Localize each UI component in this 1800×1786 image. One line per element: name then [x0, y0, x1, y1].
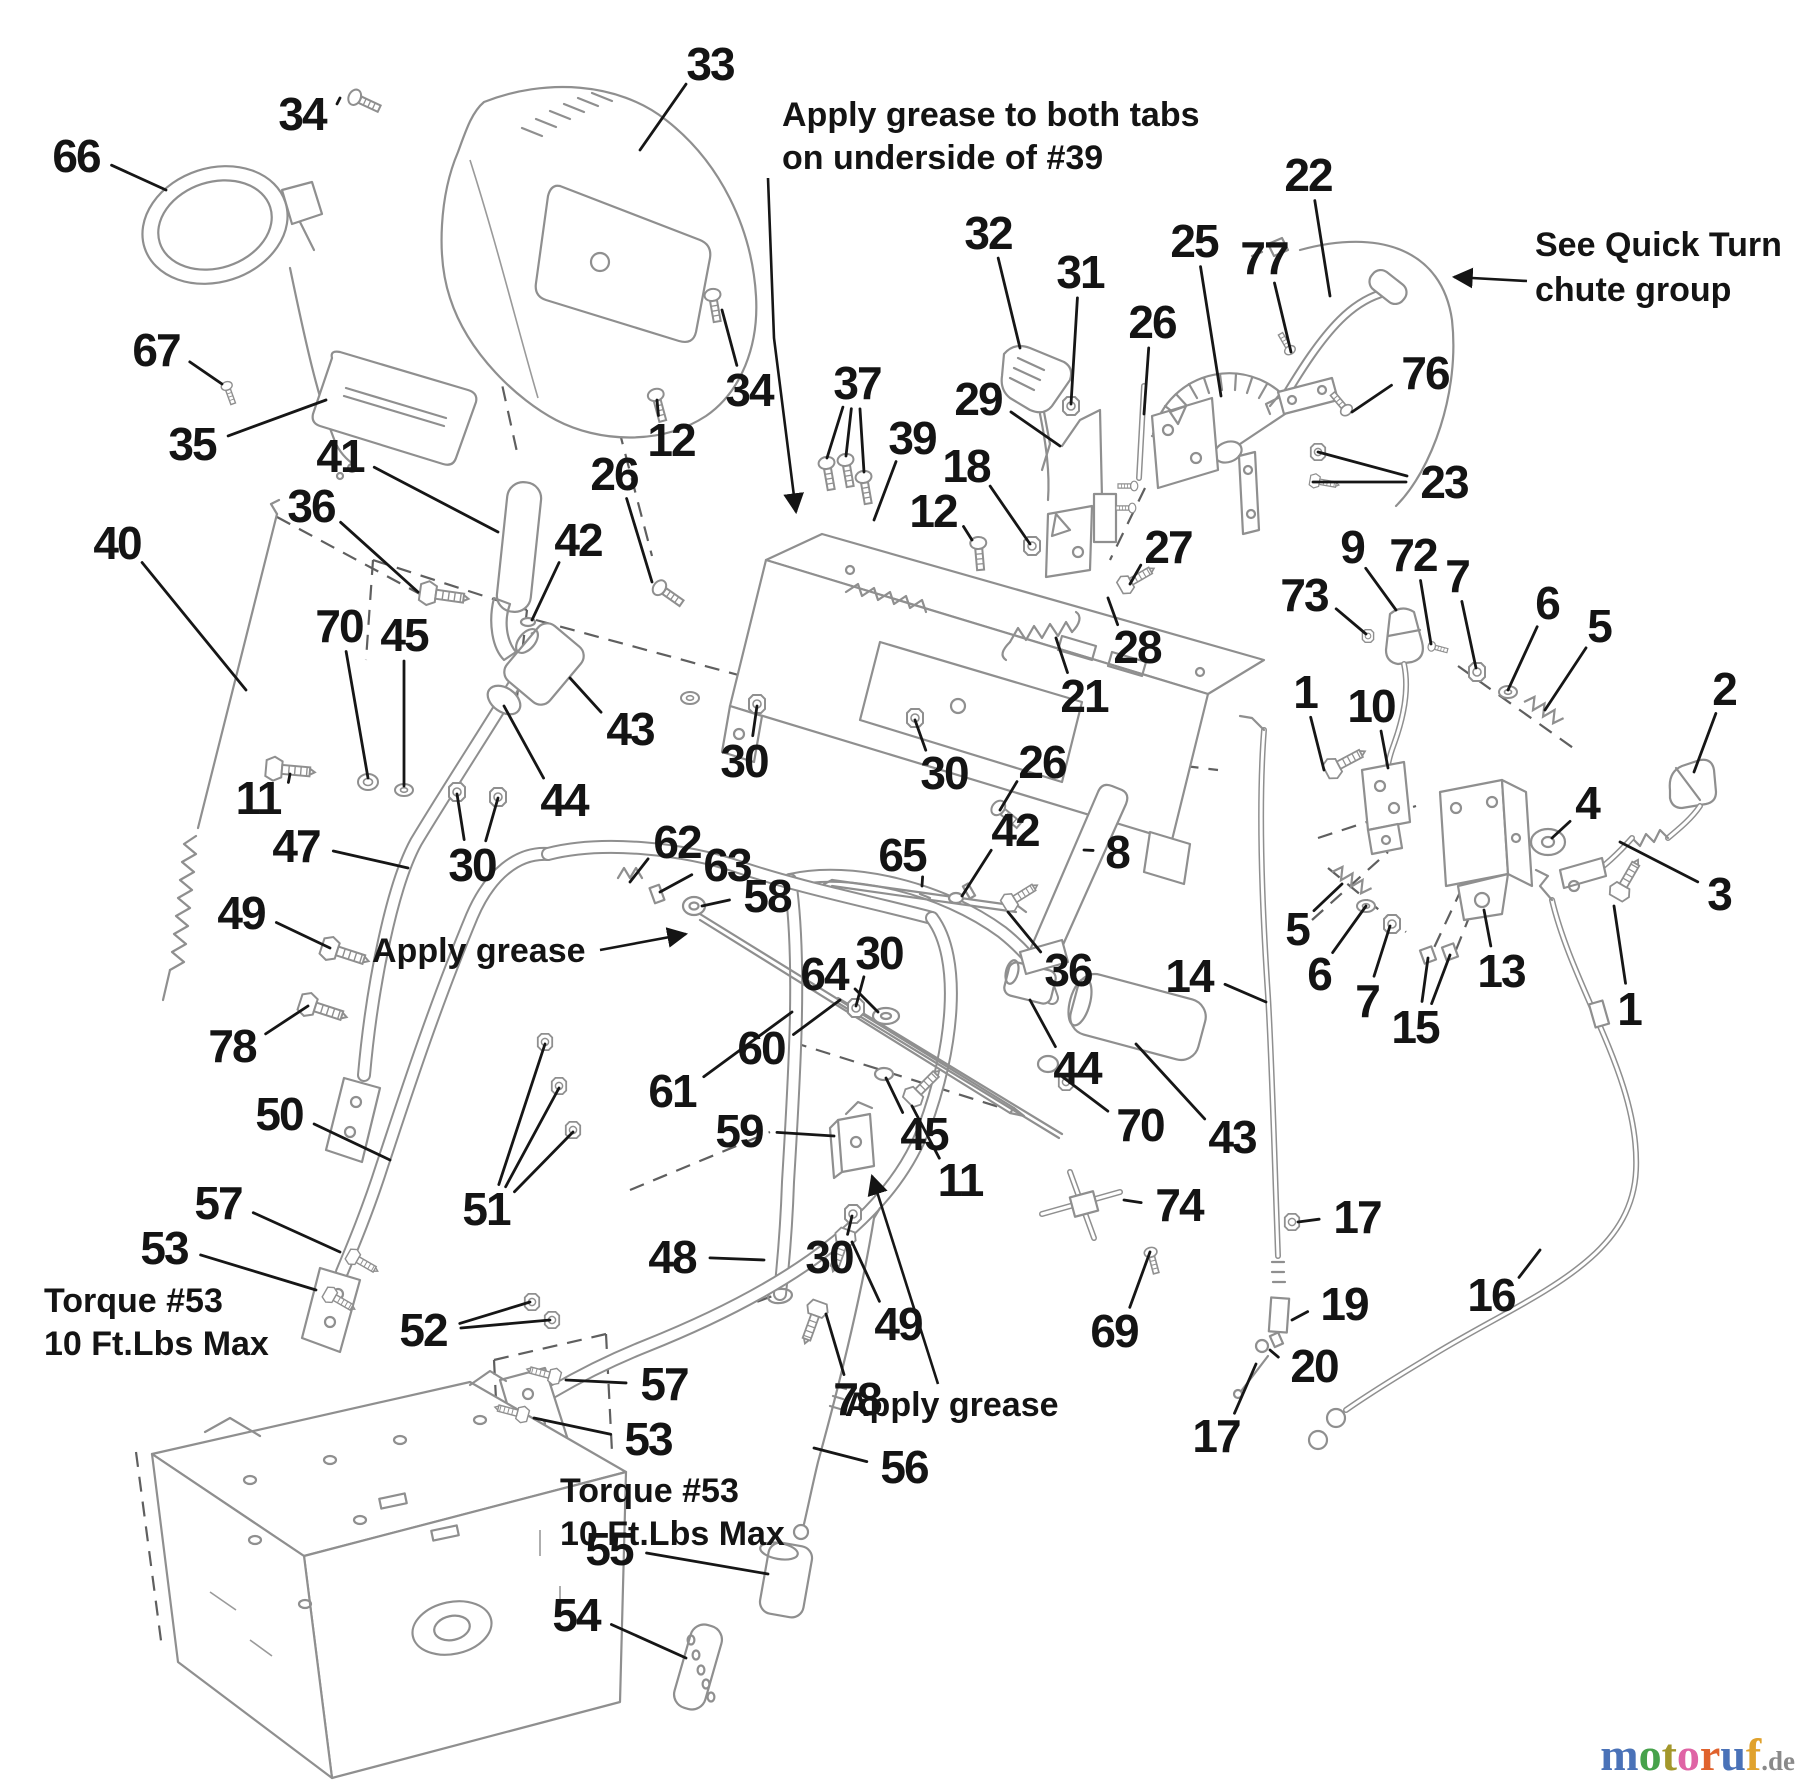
part-label-12: 12	[647, 414, 695, 466]
handle-knob-2	[1670, 760, 1716, 808]
leader-line	[647, 1553, 768, 1574]
part-label-34: 34	[278, 88, 328, 140]
part-label-10: 10	[1347, 680, 1395, 732]
leader-line	[1545, 648, 1586, 710]
leader-line	[228, 400, 326, 436]
part-label-70: 70	[315, 600, 363, 652]
part-label-9: 9	[1340, 521, 1364, 573]
part-label-28: 28	[1113, 621, 1162, 673]
leader-line	[1432, 955, 1450, 1004]
part-label-78: 78	[208, 1020, 257, 1072]
leader-line	[1071, 298, 1077, 404]
part-label-73: 73	[1280, 569, 1328, 621]
part-label-3: 3	[1707, 868, 1731, 920]
part-label-22: 22	[1284, 149, 1332, 201]
bolt-icon	[344, 1247, 382, 1279]
leader-line	[702, 900, 729, 906]
leader-line	[1381, 731, 1388, 768]
quick-turn-note-leader	[1454, 277, 1527, 281]
part-label-42: 42	[991, 804, 1039, 856]
leader-line	[1336, 609, 1366, 634]
part-label-4: 4	[1575, 777, 1601, 829]
mount-bracket	[1440, 780, 1532, 920]
watermark-text: motoruf.de	[1600, 1729, 1795, 1780]
leader-line	[962, 850, 991, 896]
latch-bracket-59	[830, 1102, 874, 1178]
screw-icon	[970, 536, 989, 570]
part-label-6: 6	[1535, 577, 1559, 629]
apply-grease-bottom-line-1: Apply grease	[845, 1386, 1059, 1424]
leader-line	[1292, 1312, 1308, 1320]
leader-line	[1225, 984, 1266, 1002]
part-label-6: 6	[1307, 948, 1331, 1000]
shift-knob	[1386, 608, 1423, 664]
apply-grease-left-line-1: Apply grease	[372, 932, 586, 970]
part-label-17: 17	[1333, 1191, 1381, 1243]
leader-line	[514, 1132, 573, 1192]
bolt-icon	[795, 1298, 830, 1347]
part-label-53: 53	[140, 1222, 188, 1274]
part-label-51: 51	[462, 1183, 511, 1235]
parts-diagram-page: 3334666735344136261237393231262577227623…	[0, 0, 1800, 1786]
leader-line	[826, 1314, 844, 1375]
part-label-7: 7	[1355, 975, 1379, 1027]
part-label-20: 20	[1290, 1340, 1338, 1392]
part-label-54: 54	[552, 1589, 602, 1641]
part-label-77: 77	[1240, 232, 1288, 284]
part-label-47: 47	[272, 820, 320, 872]
leader-line	[846, 409, 851, 456]
part-label-25: 25	[1170, 215, 1219, 267]
part-label-44: 44	[1053, 1042, 1103, 1094]
leader-line	[1508, 627, 1537, 690]
exploded-parts-diagram: 3334666735344136261237393231262577227623…	[0, 0, 1800, 1786]
leader-line	[532, 563, 559, 620]
part-label-65: 65	[878, 829, 927, 881]
leader-line	[266, 1006, 308, 1034]
strap-plate-54	[671, 1621, 725, 1712]
part-label-19: 19	[1320, 1278, 1368, 1330]
watermark: motoruf.de	[1600, 1729, 1795, 1780]
torque-note-left-line-1: Torque #53	[44, 1282, 223, 1320]
leader-line	[1519, 1250, 1540, 1277]
leader-line	[1462, 601, 1476, 668]
part-label-36: 36	[1044, 944, 1092, 996]
part-label-50: 50	[255, 1088, 303, 1140]
part-label-27: 27	[1144, 521, 1192, 573]
sector-gear	[1152, 373, 1294, 534]
leader-line	[1144, 348, 1149, 414]
leader-line	[346, 652, 368, 778]
part-label-16: 16	[1467, 1269, 1515, 1321]
screw-icon	[837, 453, 858, 488]
part-label-72: 72	[1389, 529, 1437, 581]
leader-line	[112, 165, 166, 190]
belt-cover	[442, 87, 757, 437]
part-label-58: 58	[743, 870, 792, 922]
nut-icon	[907, 709, 923, 727]
part-label-34: 34	[725, 364, 775, 416]
part-label-30: 30	[855, 927, 903, 979]
leader-line	[660, 875, 692, 892]
leader-line	[990, 486, 1030, 544]
part-label-56: 56	[880, 1441, 928, 1493]
cross-lever-74	[1042, 1172, 1120, 1238]
leader-line	[1374, 926, 1390, 976]
leader-line	[1352, 385, 1391, 412]
part-label-31: 31	[1056, 246, 1105, 298]
apply-grease-left-leader	[600, 934, 686, 950]
grease-tabs-note-line-1: Apply grease to both tabs	[782, 96, 1200, 134]
nut-icon	[845, 1205, 861, 1223]
leader-line	[1333, 906, 1366, 953]
part-label-40: 40	[93, 517, 141, 569]
spring-icon	[1331, 864, 1373, 897]
screw-icon	[346, 87, 383, 115]
grease-tabs-note-leader	[768, 178, 796, 512]
leader-line	[963, 527, 972, 540]
selector-rod	[1139, 386, 1144, 478]
bolt-icon	[418, 580, 470, 611]
part-label-57: 57	[194, 1177, 242, 1229]
nut-icon	[1384, 915, 1400, 933]
leader-line	[1298, 1219, 1319, 1222]
part-label-36: 36	[287, 480, 335, 532]
part-label-30: 30	[920, 747, 968, 799]
grease-tabs-note-line-2: on underside of #39	[782, 139, 1103, 177]
part-label-69: 69	[1090, 1305, 1138, 1357]
part-label-42: 42	[554, 514, 602, 566]
leader-line	[461, 1320, 550, 1328]
part-label-66: 66	[52, 130, 100, 182]
part-label-15: 15	[1391, 1001, 1440, 1053]
part-label-43: 43	[1208, 1111, 1256, 1163]
control-rod-14	[1234, 716, 1289, 1398]
leader-line	[1270, 1350, 1278, 1357]
part-label-17: 17	[1192, 1410, 1240, 1462]
leader-line	[142, 563, 246, 690]
part-label-45: 45	[900, 1108, 949, 1160]
part-label-1: 1	[1617, 983, 1642, 1035]
part-label-49: 49	[874, 1298, 922, 1350]
leader-line	[570, 678, 601, 712]
nut-icon	[1469, 663, 1485, 681]
part-label-45: 45	[380, 609, 429, 661]
nut-icon	[552, 1078, 566, 1094]
part-label-8: 8	[1105, 826, 1130, 878]
leader-line	[874, 462, 896, 520]
part-label-62: 62	[653, 816, 701, 868]
flat-washer-4	[1531, 829, 1565, 855]
part-label-33: 33	[686, 38, 734, 90]
leader-line	[1130, 1252, 1150, 1307]
part-label-57: 57	[640, 1358, 688, 1410]
screw-icon	[650, 578, 686, 610]
part-label-44: 44	[540, 774, 590, 826]
leader-line	[1011, 412, 1060, 446]
part-label-60: 60	[737, 1022, 785, 1074]
part-label-30: 30	[720, 735, 768, 787]
part-label-41: 41	[316, 430, 365, 482]
part-label-26: 26	[1128, 296, 1176, 348]
part-label-12: 12	[909, 485, 957, 537]
washer-icon	[681, 692, 699, 704]
part-label-49: 49	[217, 887, 265, 939]
part-label-35: 35	[168, 418, 217, 470]
screw-icon	[1118, 481, 1138, 491]
part-label-61: 61	[648, 1065, 697, 1117]
part-label-26: 26	[1018, 736, 1066, 788]
part-label-30: 30	[805, 1231, 853, 1283]
leader-line	[998, 258, 1020, 348]
leader-line	[253, 1213, 340, 1252]
part-label-43: 43	[606, 703, 654, 755]
apply-grease-bottom-leader	[872, 1176, 938, 1384]
part-label-32: 32	[964, 207, 1012, 259]
part-label-64: 64	[800, 948, 850, 1000]
leader-line	[814, 1448, 867, 1462]
leader-line	[288, 774, 290, 782]
quick-turn-note-line-1: See Quick Turn	[1535, 226, 1782, 264]
part-label-74: 74	[1155, 1179, 1205, 1231]
leader-line	[710, 1258, 764, 1260]
leader-line	[852, 1242, 879, 1301]
speed-lever	[1002, 346, 1071, 500]
torque-note-right-line-1: Torque #53	[560, 1472, 739, 1510]
screw-icon	[1116, 503, 1136, 513]
leader-line	[337, 98, 340, 104]
part-label-21: 21	[1060, 670, 1109, 722]
part-label-29: 29	[954, 373, 1002, 425]
part-label-52: 52	[399, 1304, 447, 1356]
leader-line	[827, 407, 843, 458]
bolt-icon	[318, 935, 372, 973]
leader-line	[460, 1302, 530, 1323]
torque-note-right-line-2: 10 Ft.Lbs Max	[560, 1515, 785, 1553]
part-label-14: 14	[1165, 950, 1215, 1002]
leader-line	[1311, 717, 1324, 770]
leader-line	[860, 409, 864, 472]
part-label-13: 13	[1477, 945, 1525, 997]
part-label-11: 11	[236, 772, 282, 824]
screw-icon	[1328, 390, 1355, 418]
screw-icon	[818, 456, 839, 491]
leader-line	[630, 859, 648, 882]
part-label-59: 59	[715, 1105, 763, 1157]
part-label-39: 39	[888, 412, 936, 464]
part-label-48: 48	[648, 1231, 697, 1283]
part-label-70: 70	[1116, 1099, 1164, 1151]
leader-line	[190, 362, 222, 384]
leader-line	[1614, 906, 1626, 983]
part-label-2: 2	[1712, 663, 1736, 715]
part-label-37: 37	[833, 357, 881, 409]
part-label-1: 1	[1293, 666, 1318, 718]
leader-line	[1030, 1000, 1055, 1047]
frame-chassis	[152, 1371, 626, 1778]
leader-line	[1421, 580, 1431, 644]
part-label-76: 76	[1401, 347, 1449, 399]
leader-line	[1318, 452, 1407, 476]
clutch-cable	[1309, 870, 1636, 1449]
part-label-53: 53	[624, 1413, 672, 1465]
leader-line	[504, 706, 544, 778]
part-label-23: 23	[1420, 456, 1468, 508]
anchor-bracket	[1046, 506, 1092, 577]
leader-line	[1124, 1200, 1141, 1203]
leader-line	[1234, 1364, 1256, 1413]
torque-note-left-line-2: 10 Ft.Lbs Max	[44, 1325, 269, 1363]
part-label-26: 26	[590, 448, 638, 500]
part-label-30: 30	[448, 839, 496, 891]
leader-line	[276, 923, 330, 948]
part-label-7: 7	[1445, 550, 1469, 602]
leader-line	[1315, 201, 1330, 296]
leader-line	[333, 851, 408, 868]
quick-turn-note-line-2: chute group	[1535, 271, 1731, 309]
part-label-11: 11	[938, 1154, 984, 1206]
leader-line	[499, 1044, 545, 1185]
screw-icon	[855, 470, 876, 505]
part-label-67: 67	[132, 324, 180, 376]
part-label-5: 5	[1587, 600, 1612, 652]
leader-line	[374, 467, 498, 532]
